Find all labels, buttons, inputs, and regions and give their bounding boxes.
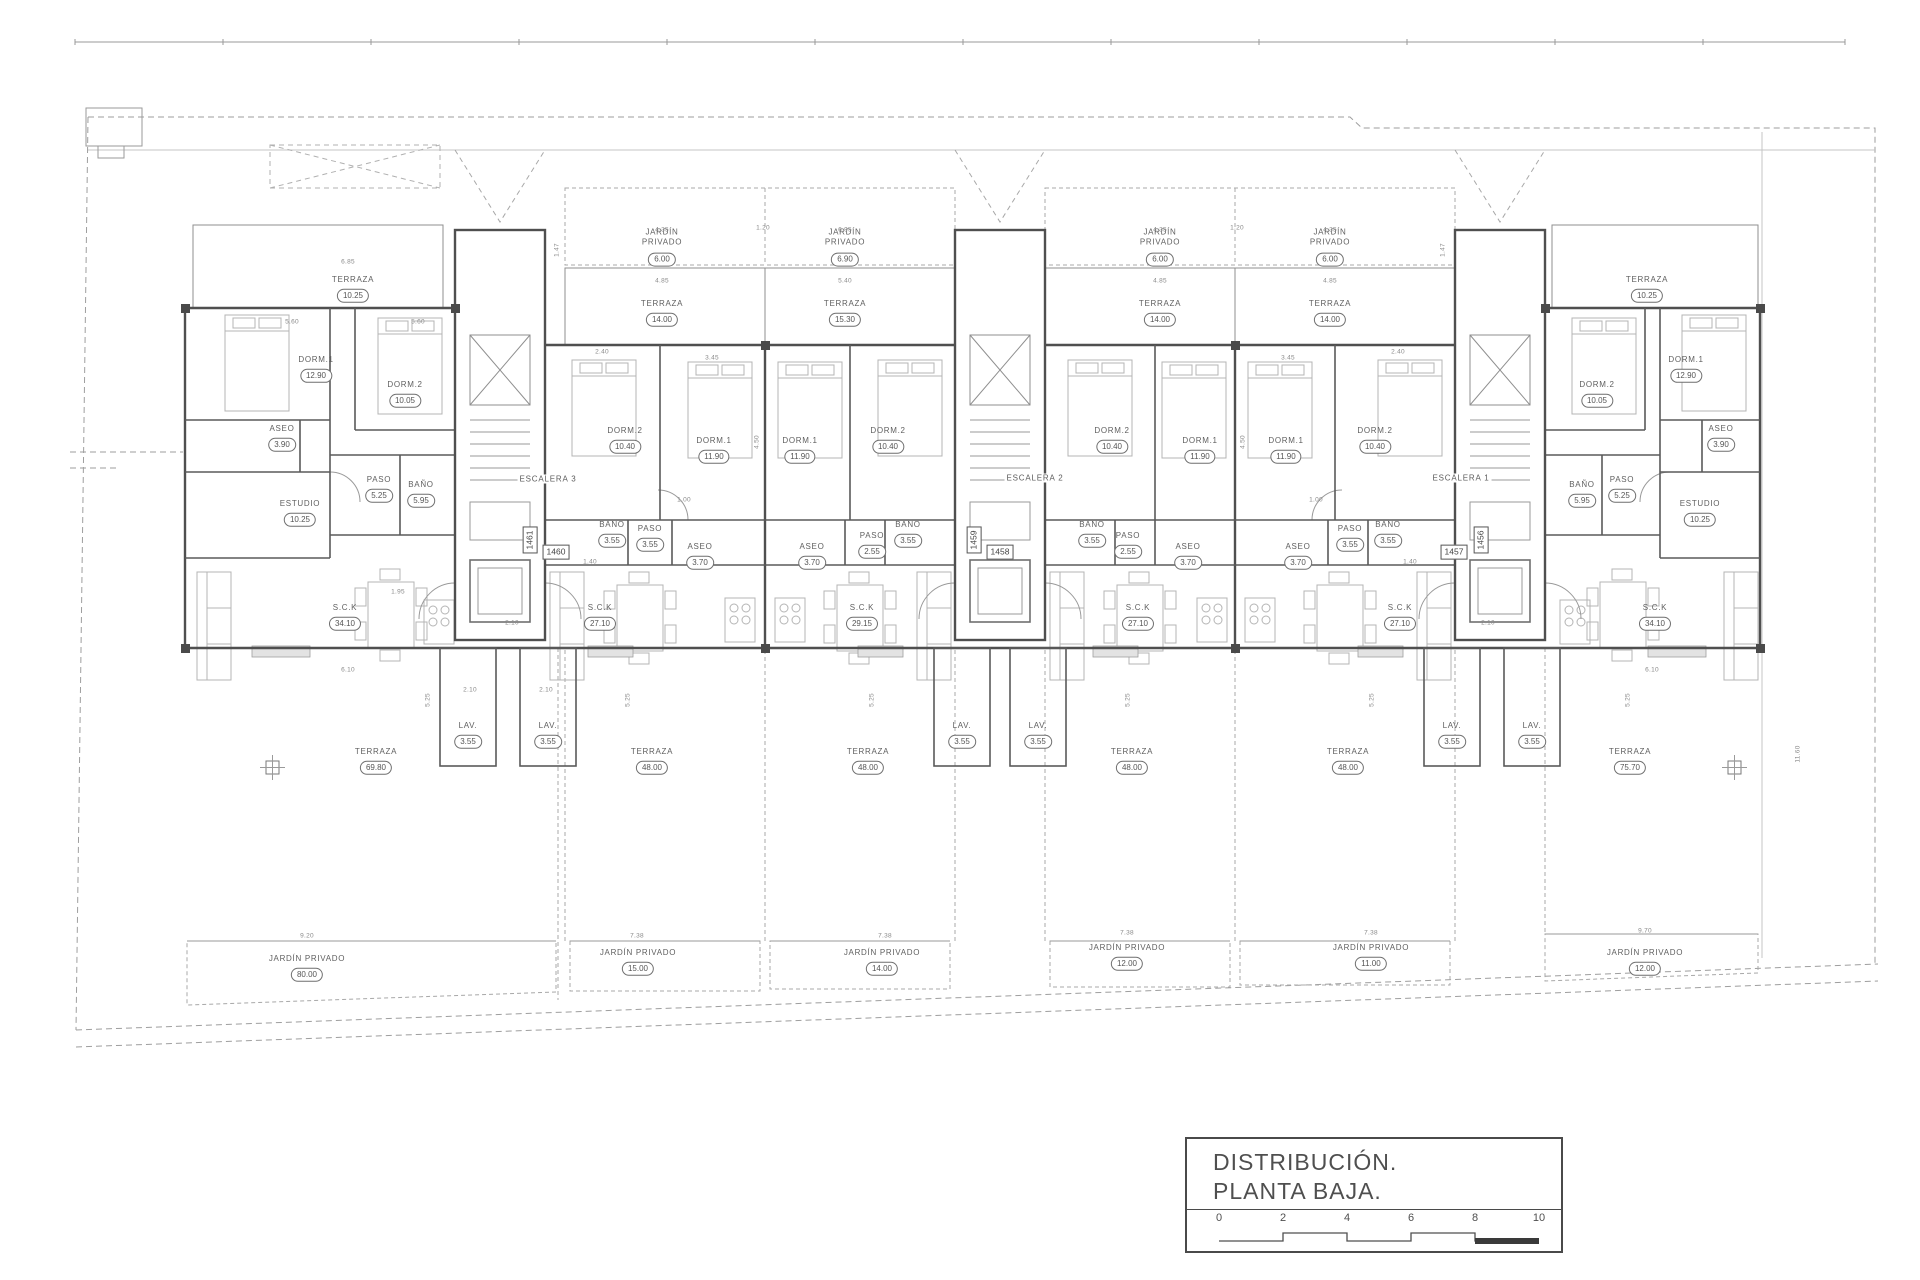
room-label-jard-n-privado: JARDÍN PRIVADO80.00 bbox=[269, 954, 345, 982]
label-layer: TERRAZA10.25DORM.112.90DORM.210.05ASEO3.… bbox=[0, 0, 1920, 1280]
dimension: 6.95 bbox=[838, 227, 852, 234]
room-label-terraza: TERRAZA15.30 bbox=[824, 299, 866, 327]
dimension: 2.10 bbox=[505, 620, 519, 627]
room-label-s-c-k: S.C.K27.10 bbox=[1384, 603, 1416, 631]
room-label-dorm-1: DORM.111.90 bbox=[782, 436, 817, 464]
room-label-terraza: TERRAZA48.00 bbox=[847, 747, 889, 775]
room-label-dorm-1: DORM.111.90 bbox=[696, 436, 731, 464]
room-label-lav: LAV.3.55 bbox=[534, 721, 562, 749]
room-label-estudio: ESTUDIO10.25 bbox=[280, 499, 320, 527]
scale-tick: 10 bbox=[1533, 1212, 1545, 1224]
dimension: 5.40 bbox=[838, 278, 852, 285]
dimension: 4.85 bbox=[1153, 278, 1167, 285]
dimension: 4.35 bbox=[655, 227, 669, 234]
dimension: 4.35 bbox=[1153, 227, 1167, 234]
stair-label: ESCALERA 3 bbox=[518, 475, 579, 484]
title-block: DISTRIBUCIÓN. PLANTA BAJA. 0246810 bbox=[1185, 1137, 1563, 1253]
room-label-aseo: ASEO3.70 bbox=[686, 542, 714, 570]
dimension: 5.25 bbox=[1125, 693, 1132, 707]
room-label-jard-n-privado: JARDÍN PRIVADO11.00 bbox=[1333, 943, 1409, 971]
dimension: 2.40 bbox=[1391, 349, 1405, 356]
room-label-ba-o: BAÑO3.55 bbox=[1078, 520, 1106, 548]
room-label-s-c-k: S.C.K34.10 bbox=[329, 603, 361, 631]
dimension: 9.20 bbox=[300, 933, 314, 940]
dimension: 1.47 bbox=[554, 243, 561, 257]
dimension: 4.85 bbox=[655, 278, 669, 285]
room-label-aseo: ASEO3.90 bbox=[1707, 424, 1735, 452]
room-label-dorm-2: DORM.210.40 bbox=[1357, 426, 1392, 454]
room-label-terraza: TERRAZA48.00 bbox=[1111, 747, 1153, 775]
plot-number: 1458 bbox=[987, 545, 1014, 560]
room-label-dorm-2: DORM.210.40 bbox=[607, 426, 642, 454]
room-label-terraza: TERRAZA14.00 bbox=[641, 299, 683, 327]
dimension: 1.47 bbox=[1440, 243, 1447, 257]
dimension: 2.10 bbox=[539, 687, 553, 694]
room-label-ba-o: BAÑO3.55 bbox=[894, 520, 922, 548]
room-label-lav: LAV.3.55 bbox=[454, 721, 482, 749]
dimension: 2.10 bbox=[463, 687, 477, 694]
dimension: 6.85 bbox=[341, 259, 355, 266]
dimension: 1.40 bbox=[583, 559, 597, 566]
room-label-terraza: TERRAZA10.25 bbox=[1626, 275, 1668, 303]
dimension: 9.70 bbox=[1638, 928, 1652, 935]
dimension: 1.00 bbox=[677, 497, 691, 504]
room-label-estudio: ESTUDIO10.25 bbox=[1680, 499, 1720, 527]
dimension: 5.25 bbox=[1625, 693, 1632, 707]
room-label-s-c-k: S.C.K29.15 bbox=[846, 603, 878, 631]
plot-number: 1456 bbox=[1474, 527, 1489, 554]
dimension: 1.20 bbox=[756, 225, 770, 232]
dimension: 1.20 bbox=[1230, 225, 1244, 232]
room-label-paso: PASO3.55 bbox=[1336, 524, 1364, 552]
room-label-dorm-2: DORM.210.40 bbox=[1094, 426, 1129, 454]
room-label-terraza: TERRAZA48.00 bbox=[631, 747, 673, 775]
scale-bar: 0246810 bbox=[1187, 1209, 1561, 1251]
room-label-lav: LAV.3.55 bbox=[1438, 721, 1466, 749]
floor-plan-page: TERRAZA10.25DORM.112.90DORM.210.05ASEO3.… bbox=[0, 0, 1920, 1280]
room-label-terraza: TERRAZA48.00 bbox=[1327, 747, 1369, 775]
room-label-terraza: TERRAZA14.00 bbox=[1139, 299, 1181, 327]
room-label-jard-n-privado: JARDÍN PRIVADO14.00 bbox=[844, 948, 920, 976]
room-label-s-c-k: S.C.K27.10 bbox=[584, 603, 616, 631]
room-label-ba-o: BAÑO5.95 bbox=[1568, 480, 1596, 508]
stair-label: ESCALERA 1 bbox=[1431, 474, 1492, 483]
room-label-paso: PASO2.55 bbox=[858, 531, 886, 559]
room-label-lav: LAV.3.55 bbox=[948, 721, 976, 749]
dimension: 6.10 bbox=[1645, 667, 1659, 674]
scale-tick: 6 bbox=[1408, 1212, 1414, 1224]
dimension: 5.25 bbox=[869, 693, 876, 707]
scale-tick: 8 bbox=[1472, 1212, 1478, 1224]
dimension: 2.10 bbox=[1481, 620, 1495, 627]
dimension: 1.00 bbox=[1309, 497, 1323, 504]
dimension: 5.25 bbox=[425, 693, 432, 707]
room-label-paso: PASO5.25 bbox=[365, 475, 393, 503]
room-label-ba-o: BAÑO3.55 bbox=[598, 520, 626, 548]
dimension: 3.45 bbox=[1281, 355, 1295, 362]
dimension: 7.38 bbox=[1120, 930, 1134, 937]
scale-bar-steps bbox=[1187, 1210, 1561, 1249]
dimension: 7.38 bbox=[878, 933, 892, 940]
room-label-ba-o: BAÑO3.55 bbox=[1374, 520, 1402, 548]
plot-number: 1461 bbox=[523, 527, 538, 554]
room-label-aseo: ASEO3.70 bbox=[1174, 542, 1202, 570]
room-label-terraza: TERRAZA75.70 bbox=[1609, 747, 1651, 775]
room-label-paso: PASO3.55 bbox=[636, 524, 664, 552]
dimension: 1.95 bbox=[391, 589, 405, 596]
room-label-jard-n-privado: JARDÍN PRIVADO12.00 bbox=[1607, 948, 1683, 976]
room-label-dorm-2: DORM.210.05 bbox=[387, 380, 422, 408]
dimension: 6.10 bbox=[341, 667, 355, 674]
dimension: 4.35 bbox=[1323, 227, 1337, 234]
drawing-title-line2: PLANTA BAJA. bbox=[1213, 1177, 1561, 1206]
room-label-dorm-2: DORM.210.40 bbox=[870, 426, 905, 454]
room-label-lav: LAV.3.55 bbox=[1024, 721, 1052, 749]
room-label-paso: PASO5.25 bbox=[1608, 475, 1636, 503]
room-label-dorm-1: DORM.112.90 bbox=[1668, 355, 1703, 383]
room-label-aseo: ASEO3.70 bbox=[798, 542, 826, 570]
dimension: 3.45 bbox=[705, 355, 719, 362]
scale-tick: 0 bbox=[1216, 1212, 1222, 1224]
room-label-jard-n-privado: JARDÍN PRIVADO15.00 bbox=[600, 948, 676, 976]
plot-number: 1460 bbox=[543, 545, 570, 560]
room-label-s-c-k: S.C.K27.10 bbox=[1122, 603, 1154, 631]
room-label-aseo: ASEO3.70 bbox=[1284, 542, 1312, 570]
room-label-jard-n-privado: JARDÍN PRIVADO12.00 bbox=[1089, 943, 1165, 971]
room-label-dorm-1: DORM.112.90 bbox=[298, 355, 333, 383]
plot-number: 1457 bbox=[1441, 545, 1468, 560]
scale-tick: 2 bbox=[1280, 1212, 1286, 1224]
room-label-terraza: TERRAZA10.25 bbox=[332, 275, 374, 303]
plot-number: 1459 bbox=[967, 527, 982, 554]
dimension: 4.50 bbox=[754, 435, 761, 449]
stair-label: ESCALERA 2 bbox=[1005, 474, 1066, 483]
dimension: 11.60 bbox=[1795, 745, 1802, 762]
room-label-terraza: TERRAZA69.80 bbox=[355, 747, 397, 775]
dimension: 5.60 bbox=[285, 319, 299, 326]
dimension: 5.25 bbox=[1369, 693, 1376, 707]
room-label-s-c-k: S.C.K34.10 bbox=[1639, 603, 1671, 631]
room-label-ba-o: BAÑO5.95 bbox=[407, 480, 435, 508]
dimension: 2.40 bbox=[595, 349, 609, 356]
dimension: 4.50 bbox=[1240, 435, 1247, 449]
scale-tick: 4 bbox=[1344, 1212, 1350, 1224]
room-label-lav: LAV.3.55 bbox=[1518, 721, 1546, 749]
room-label-terraza: TERRAZA14.00 bbox=[1309, 299, 1351, 327]
room-label-dorm-1: DORM.111.90 bbox=[1268, 436, 1303, 464]
dimension: 7.38 bbox=[630, 933, 644, 940]
room-label-dorm-2: DORM.210.05 bbox=[1579, 380, 1614, 408]
dimension: 4.85 bbox=[1323, 278, 1337, 285]
dimension: 5.25 bbox=[625, 693, 632, 707]
drawing-title: DISTRIBUCIÓN. PLANTA BAJA. bbox=[1187, 1139, 1561, 1207]
room-label-aseo: ASEO3.90 bbox=[268, 424, 296, 452]
dimension: 1.40 bbox=[1403, 559, 1417, 566]
drawing-title-line1: DISTRIBUCIÓN. bbox=[1213, 1148, 1561, 1177]
dimension: 7.38 bbox=[1364, 930, 1378, 937]
room-label-dorm-1: DORM.111.90 bbox=[1182, 436, 1217, 464]
room-label-paso: PASO2.55 bbox=[1114, 531, 1142, 559]
dimension: 5.60 bbox=[411, 319, 425, 326]
